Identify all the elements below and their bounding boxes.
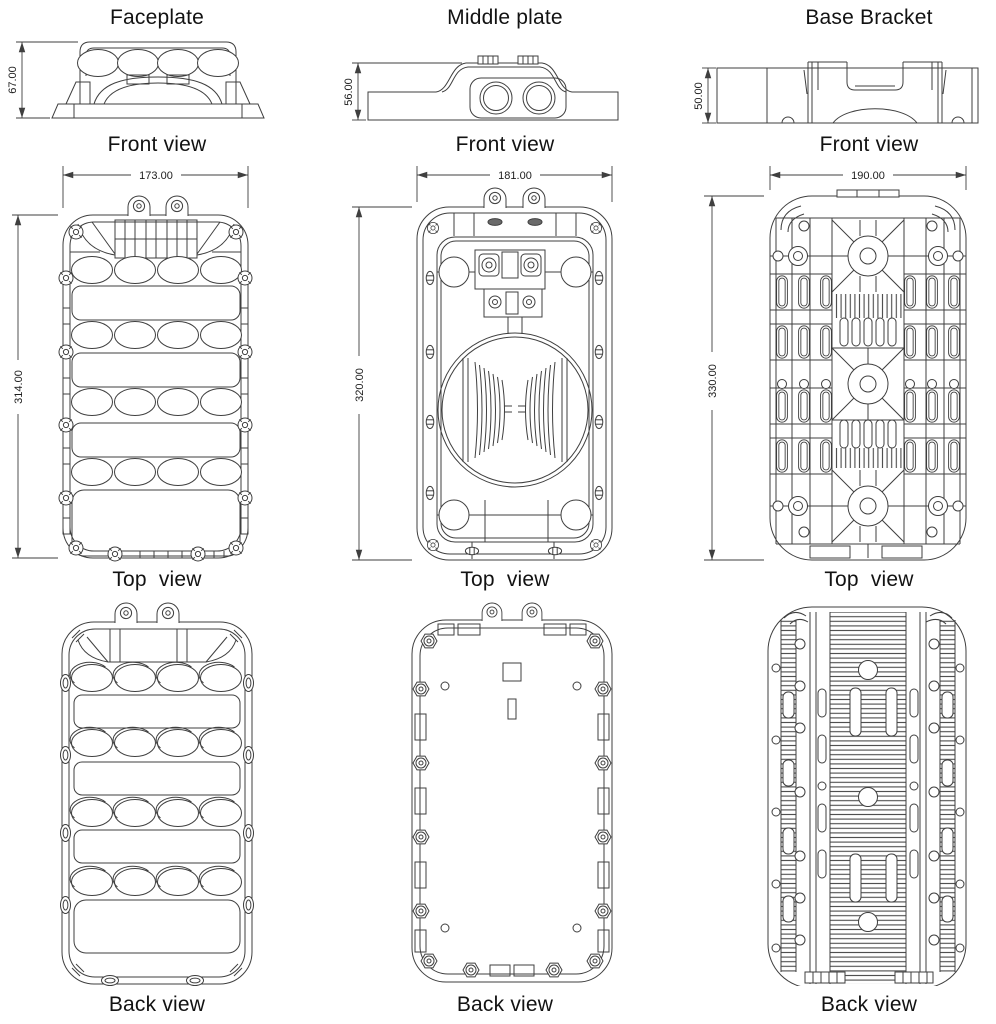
dimension-width: 190.00 (770, 166, 966, 190)
label-base-back: Back view (664, 986, 996, 1024)
part-outline (63, 196, 248, 558)
dimension-height: 320.00 (351, 207, 412, 560)
base-bracket-front-view: 50.00 (664, 36, 996, 128)
middle-plate-top-drawing: 181.00 320.00 (332, 162, 664, 564)
label-faceplate-back: Back view (0, 986, 332, 1024)
middle-plate-back-view (332, 596, 664, 986)
base-bracket-top-view: 190.00 330.00 (664, 162, 996, 564)
louver-rows (72, 257, 242, 557)
dim-label: 173.00 (139, 170, 173, 182)
label-middle-front: Front view (332, 128, 664, 162)
dim-label: 190.00 (851, 170, 885, 182)
faceplate-back-drawing (0, 596, 332, 986)
dim-label: 314.00 (13, 370, 25, 404)
label-middle-top: Top view (332, 564, 664, 596)
title-middle-plate: Middle plate (332, 0, 664, 36)
border-bosses (413, 624, 611, 977)
dimension-height: 50.00 (693, 68, 716, 123)
title-faceplate: Faceplate (0, 0, 332, 36)
dim-label: 67.00 (7, 66, 19, 94)
part-outline (62, 603, 252, 984)
dimension-height: 67.00 (7, 42, 78, 118)
inner-structure (437, 250, 593, 542)
dim-label: 320.00 (354, 368, 366, 402)
faceplate-front-drawing: 67.00 (0, 36, 332, 128)
bottom-feet (810, 544, 922, 558)
title-base-bracket: Base Bracket (664, 0, 996, 36)
middle-plate-back-drawing (332, 596, 664, 986)
middle-plate-top-view: 181.00 320.00 (332, 162, 664, 564)
center-bosses (770, 220, 966, 542)
part-outline (52, 42, 264, 118)
interior-features (441, 663, 581, 932)
middle-plate-front-drawing: 56.00 (332, 36, 664, 128)
base-bracket-front-drawing: 50.00 (664, 36, 996, 128)
dimension-width: 181.00 (417, 166, 612, 202)
label-base-top: Top view (664, 564, 996, 596)
label-base-front: Front view (664, 128, 996, 162)
label-faceplate-top: Top view (0, 564, 332, 596)
dimension-width: 173.00 (63, 166, 248, 208)
dim-label: 56.00 (343, 78, 355, 106)
dimension-height: 330.00 (704, 196, 764, 560)
dim-label: 50.00 (693, 82, 705, 110)
label-middle-back: Back view (332, 986, 664, 1024)
coil-pattern (463, 358, 567, 462)
faceplate-top-drawing: 173.00 314.00 (0, 162, 332, 564)
base-bracket-back-drawing (664, 596, 996, 986)
label-faceplate-front: Front view (0, 128, 332, 162)
faceplate-back-view (0, 596, 332, 986)
drawing-sheet: Faceplate Middle plate Base Bracket 67.0… (0, 0, 996, 1024)
part-outline (717, 62, 978, 123)
part-outline (368, 56, 618, 120)
base-bracket-top-drawing: 190.00 330.00 (664, 162, 996, 564)
faceplate-top-view: 173.00 314.00 (0, 162, 332, 564)
middle-plate-front-view: 56.00 (332, 36, 664, 128)
louver-rows (70, 662, 241, 953)
dimension-height: 314.00 (10, 215, 58, 558)
faceplate-front-view: 67.00 (0, 36, 332, 128)
dim-label: 330.00 (707, 364, 719, 398)
dim-label: 181.00 (498, 170, 532, 182)
base-bracket-back-view (664, 596, 996, 986)
